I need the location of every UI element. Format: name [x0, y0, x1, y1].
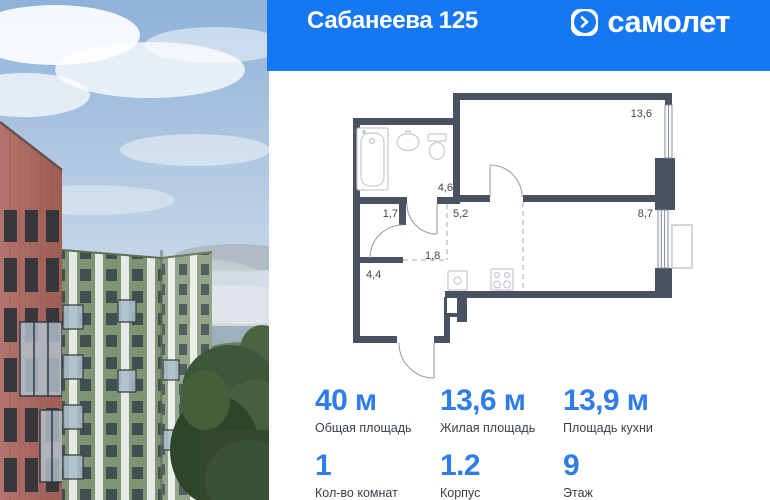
stat-value: 1.2 — [440, 451, 563, 481]
stat-value: 9 — [563, 451, 755, 481]
room-area-label: 4,6 — [438, 182, 453, 194]
stats-grid: 40 м Общая площадь 13,6 м Жилая площадь … — [315, 386, 755, 500]
room-area-label: 5,2 — [453, 208, 468, 220]
stat-building-number: 1.2 Корпус — [440, 451, 563, 500]
stat-label: Общая площадь — [315, 421, 440, 435]
listing-card[interactable]: Сабанеева 125 самолет — [0, 0, 770, 500]
arrow-right-icon — [574, 11, 596, 33]
stat-value: 13,6 м — [440, 386, 563, 416]
stat-rooms-count: 1 Кол-во комнат — [315, 451, 440, 500]
room-area-label: 1,7 — [383, 208, 398, 220]
stat-value: 40 м — [315, 386, 440, 416]
header-bar: Сабанеева 125 самолет — [267, 0, 770, 71]
stat-floor-number: 9 Этаж — [563, 451, 755, 500]
stat-value: 13,9 м — [563, 386, 755, 416]
stat-living-area: 13,6 м Жилая площадь — [440, 386, 563, 435]
stat-label: Жилая площадь — [440, 421, 563, 435]
stat-label: Кол-во комнат — [315, 486, 440, 500]
brand-name: самолет — [607, 6, 730, 38]
samolet-logo-badge — [571, 9, 598, 36]
room-area-label: 1,8 — [425, 250, 440, 262]
samolet-logo[interactable]: самолет — [571, 6, 730, 38]
stat-kitchen-area: 13,9 м Площадь кухни — [563, 386, 755, 435]
stat-label: Площадь кухни — [563, 421, 755, 435]
room-area-label: 4,4 — [366, 269, 381, 281]
building-photo — [0, 0, 269, 500]
stat-value: 1 — [315, 451, 440, 481]
stat-total-area: 40 м Общая площадь — [315, 386, 440, 435]
stat-label: Корпус — [440, 486, 563, 500]
room-area-label: 13,6 — [631, 108, 652, 120]
page-title: Сабанеева 125 — [307, 6, 478, 36]
floor-plan: 13,6 4,6 1,7 5,2 1,8 4,4 8,7 — [340, 70, 770, 380]
room-area-label: 8,7 — [638, 208, 653, 220]
stat-label: Этаж — [563, 486, 755, 500]
